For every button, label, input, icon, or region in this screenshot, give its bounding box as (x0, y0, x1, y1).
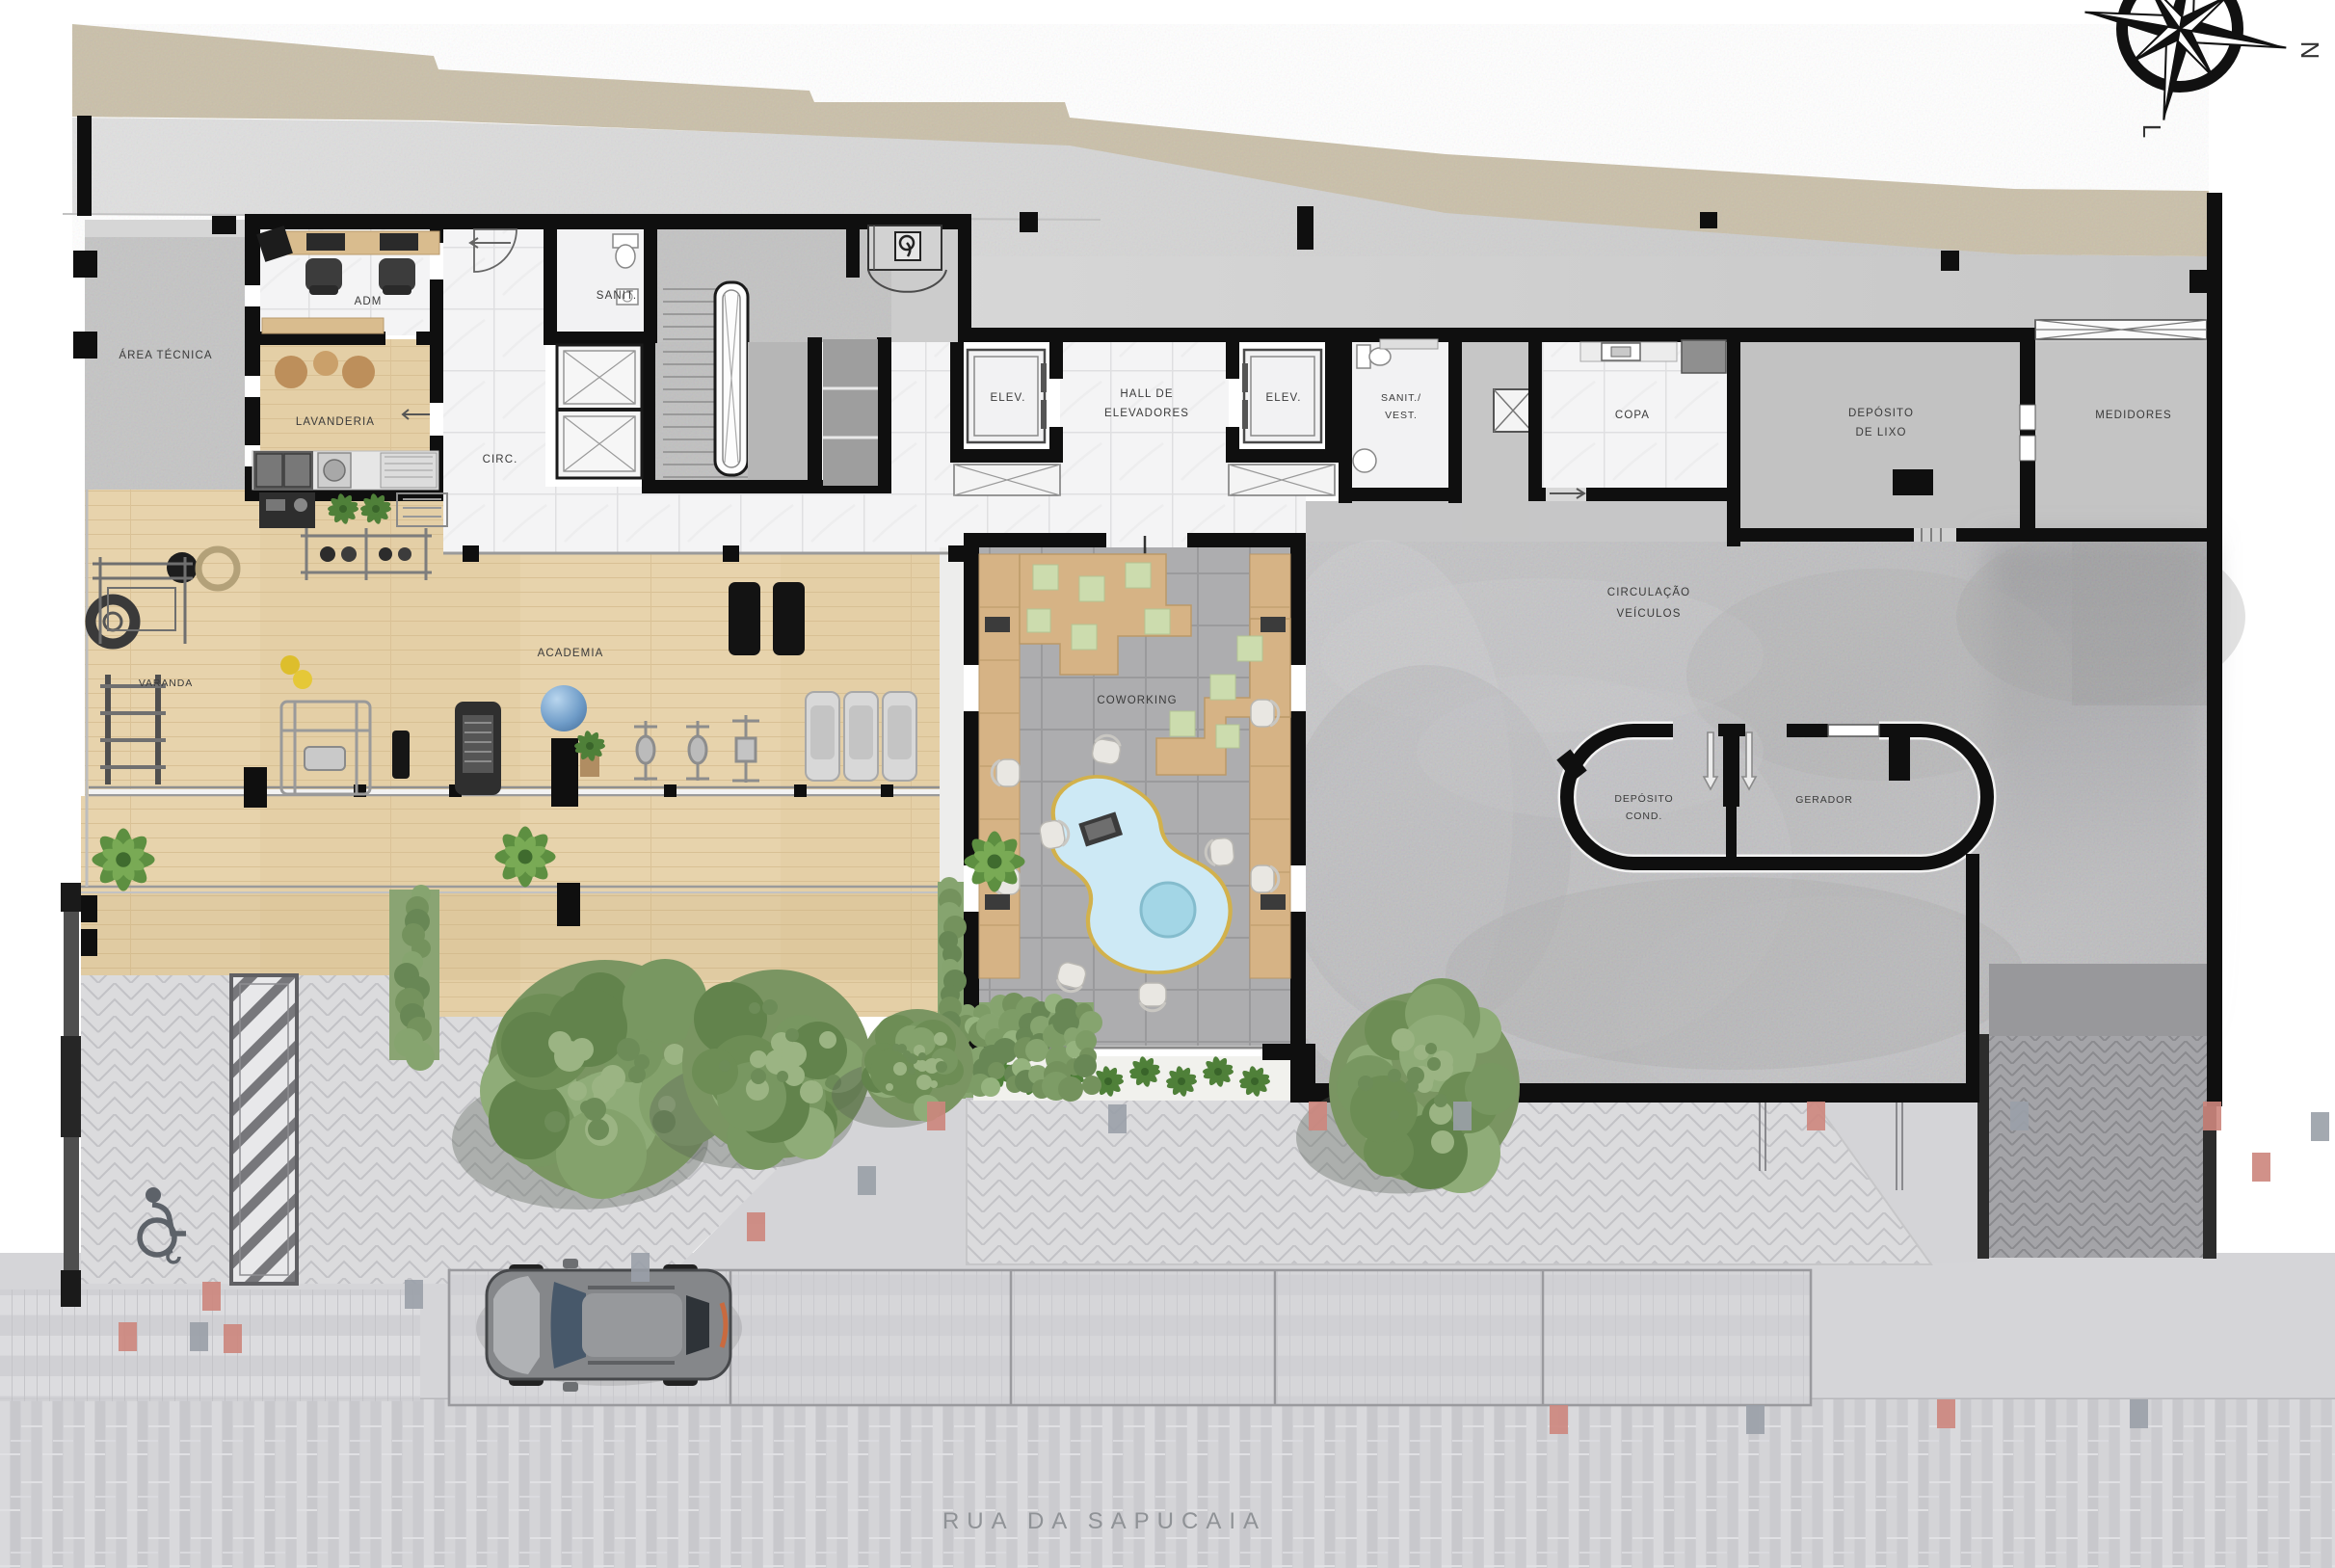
svg-text:SANIT.: SANIT. (597, 290, 637, 302)
svg-text:L: L (2137, 124, 2166, 138)
svg-text:VARANDA: VARANDA (139, 678, 193, 689)
svg-text:ACADEMIA: ACADEMIA (538, 648, 604, 659)
svg-text:N: N (2295, 41, 2324, 60)
svg-text:COWORKING: COWORKING (1097, 695, 1177, 706)
svg-text:DEPÓSITO: DEPÓSITO (1848, 407, 1914, 419)
svg-text:ELEVADORES: ELEVADORES (1104, 408, 1189, 419)
svg-text:RUA DA SAPUCAIA: RUA DA SAPUCAIA (942, 1508, 1266, 1534)
svg-text:HALL DE: HALL DE (1120, 388, 1173, 400)
svg-text:ELEV.: ELEV. (1265, 392, 1301, 404)
svg-text:MEDIDORES: MEDIDORES (2095, 410, 2172, 421)
svg-text:COPA: COPA (1615, 410, 1650, 421)
svg-text:VEÍCULOS: VEÍCULOS (1617, 607, 1682, 620)
svg-text:SANIT./: SANIT./ (1381, 392, 1421, 404)
svg-text:DEPÓSITO: DEPÓSITO (1614, 792, 1673, 805)
svg-text:GERADOR: GERADOR (1795, 794, 1852, 806)
svg-text:VEST.: VEST. (1385, 410, 1418, 421)
svg-text:LAVANDERIA: LAVANDERIA (296, 416, 375, 428)
svg-text:ADM: ADM (355, 296, 383, 307)
svg-text:COND.: COND. (1626, 811, 1662, 822)
svg-text:CIRC.: CIRC. (483, 454, 518, 465)
svg-text:ÁREA TÉCNICA: ÁREA TÉCNICA (119, 349, 212, 361)
svg-text:DE LIXO: DE LIXO (1855, 427, 1906, 439)
svg-text:ELEV.: ELEV. (990, 392, 1025, 404)
svg-text:CIRCULAÇÃO: CIRCULAÇÃO (1607, 586, 1690, 598)
